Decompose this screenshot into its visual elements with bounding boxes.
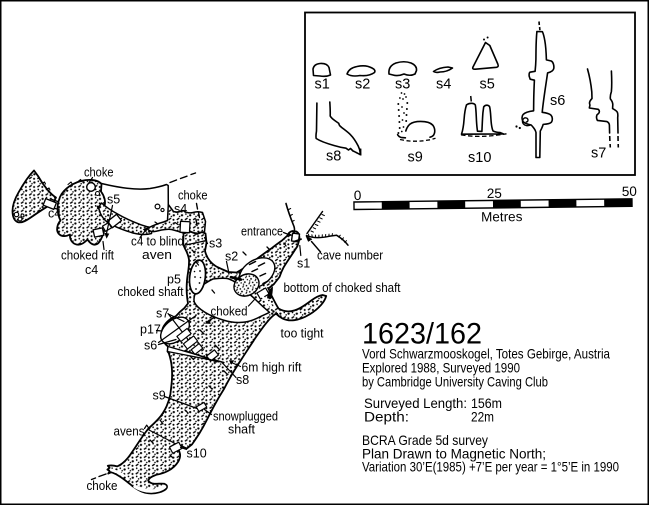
svg-text:entrance: entrance xyxy=(241,225,283,239)
svg-text:s6: s6 xyxy=(550,93,565,109)
svg-text:Metres: Metres xyxy=(481,209,523,224)
svg-text:bottom of choked shaft: bottom of choked shaft xyxy=(284,281,401,295)
svg-text:25: 25 xyxy=(487,186,502,201)
svg-text:by Cambridge University Caving: by Cambridge University Caving Club xyxy=(362,374,548,390)
svg-text:50: 50 xyxy=(622,184,637,199)
svg-text:choke: choke xyxy=(84,166,114,180)
svg-text:c4 to blind: c4 to blind xyxy=(131,235,184,249)
svg-text:s5: s5 xyxy=(480,77,495,93)
svg-text:s9: s9 xyxy=(408,150,423,166)
svg-text:choke: choke xyxy=(87,479,118,493)
svg-text:aven: aven xyxy=(142,248,172,262)
svg-text:s8: s8 xyxy=(236,373,249,387)
svg-text:s6: s6 xyxy=(144,339,157,353)
svg-text:s10: s10 xyxy=(187,447,207,461)
svg-text:Depth:: Depth: xyxy=(364,409,409,425)
svg-text:s2: s2 xyxy=(225,250,238,264)
svg-text:c4: c4 xyxy=(48,207,61,221)
svg-text:s1: s1 xyxy=(297,257,310,271)
svg-text:s3: s3 xyxy=(395,77,410,93)
svg-text:6m high rift: 6m high rift xyxy=(242,361,302,375)
svg-text:s2: s2 xyxy=(355,77,370,93)
svg-text:snowplugged: snowplugged xyxy=(213,410,278,424)
svg-text:too tight: too tight xyxy=(281,327,325,341)
svg-text:Variation 30’E(1985) +7’E per: Variation 30’E(1985) +7’E per year = 1°5… xyxy=(362,459,619,475)
svg-text:s10: s10 xyxy=(468,150,491,166)
svg-text:choke: choke xyxy=(178,189,208,203)
svg-text:shaft: shaft xyxy=(228,423,256,437)
svg-text:s8: s8 xyxy=(326,149,341,165)
svg-text:cave number: cave number xyxy=(317,249,383,263)
svg-text:s9: s9 xyxy=(153,389,166,403)
svg-text:s4: s4 xyxy=(436,77,451,93)
svg-text:choked shaft: choked shaft xyxy=(118,285,184,299)
svg-text:p17: p17 xyxy=(140,323,161,337)
svg-text:s7: s7 xyxy=(591,146,606,162)
svg-text:choked: choked xyxy=(211,305,248,319)
svg-text:0: 0 xyxy=(354,188,362,203)
svg-text:s1: s1 xyxy=(315,77,330,93)
svg-text:22m: 22m xyxy=(471,409,494,425)
svg-text:choked rift: choked rift xyxy=(61,249,114,263)
svg-text:avens: avens xyxy=(114,425,145,439)
svg-text:s5: s5 xyxy=(107,193,120,207)
svg-text:c4: c4 xyxy=(85,263,98,277)
svg-text:s4: s4 xyxy=(174,202,187,216)
svg-text:s3: s3 xyxy=(209,237,222,251)
svg-text:s7: s7 xyxy=(156,307,169,321)
